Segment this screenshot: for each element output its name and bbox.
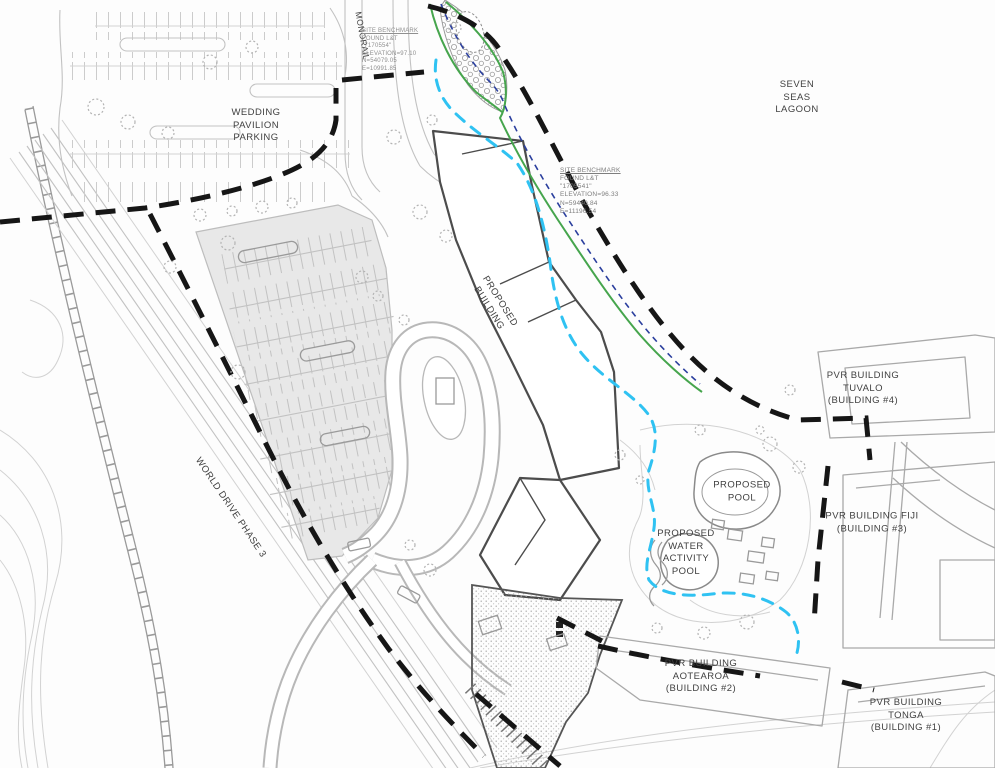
benchmark-note-north: SITE BENCHMARK FOUND L&T "7170554" ELEVA… xyxy=(362,28,418,73)
label-pvr-building-tuvalo: PVR BUILDING TUVALO (BUILDING #4) xyxy=(827,370,899,408)
wedding-pavilion-parking-lot xyxy=(59,8,352,202)
benchmark-shore-title: SITE BENCHMARK xyxy=(560,167,621,175)
label-pvr-building-tonga: PVR BUILDING TONGA (BUILDING #1) xyxy=(870,697,942,735)
label-proposed-pool: PROPOSED POOL xyxy=(713,479,770,504)
site-plan-canvas: WEDDING PAVILION PARKING SEVEN SEAS LAGO… xyxy=(0,0,995,768)
benchmark-north-title: SITE BENCHMARK xyxy=(362,28,418,36)
entry-plaza xyxy=(470,585,622,768)
benchmark-note-shore: SITE BENCHMARK FOUND L&T "1705541" ELEVA… xyxy=(560,167,621,216)
label-wedding-pavilion-parking: WEDDING PAVILION PARKING xyxy=(231,107,280,145)
label-proposed-water-activity-pool: PROPOSED WATER ACTIVITY POOL xyxy=(657,528,714,578)
rail-corridor xyxy=(25,106,173,768)
label-pvr-building-fiji: PVR BUILDING FIJI (BUILDING #3) xyxy=(825,510,918,535)
label-pvr-building-aotearoa: PVR BUILDING AOTEAROA (BUILDING #2) xyxy=(665,658,737,696)
label-seven-seas-lagoon: SEVEN SEAS LAGOON xyxy=(775,79,818,117)
pvr-building-fiji-outline xyxy=(843,462,995,648)
contour-lines xyxy=(0,300,63,768)
world-drive-road xyxy=(10,120,497,768)
